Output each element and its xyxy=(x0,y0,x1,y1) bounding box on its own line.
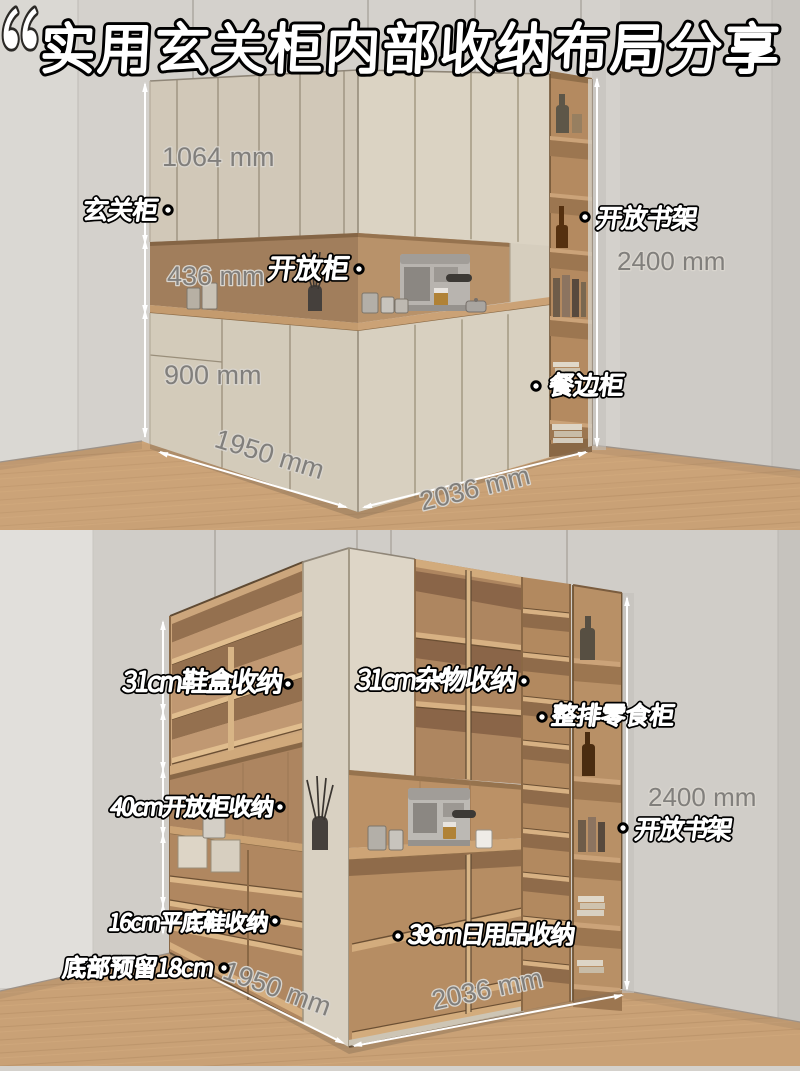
svg-text:436 mm: 436 mm xyxy=(167,261,265,291)
svg-text:2400 mm: 2400 mm xyxy=(617,246,725,276)
svg-text:1064 mm: 1064 mm xyxy=(162,142,275,172)
svg-text:2400 mm: 2400 mm xyxy=(648,782,756,812)
svg-text:900 mm: 900 mm xyxy=(164,360,262,390)
